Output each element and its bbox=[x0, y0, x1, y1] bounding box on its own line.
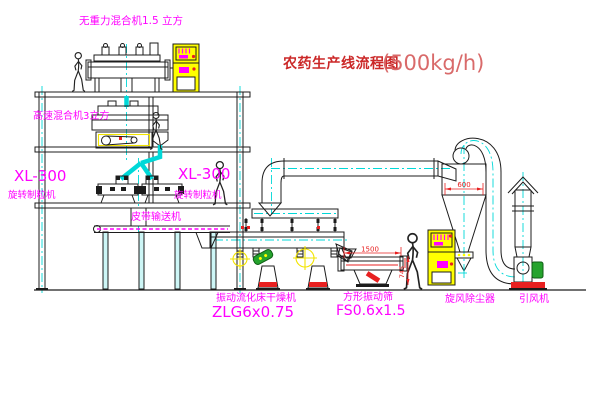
control-cabinet-lower bbox=[428, 230, 455, 285]
recirculation-duct bbox=[455, 138, 515, 284]
dryer-exhaust-duct bbox=[259, 158, 456, 216]
label-cyclone: 旋风除尘器 bbox=[445, 292, 495, 305]
label-sieve-name: 方形振动筛 bbox=[343, 290, 393, 303]
diagram-capacity: (500kg/h) bbox=[382, 51, 484, 75]
dim-sieve-height: 745 bbox=[398, 266, 406, 278]
label-granulator-right-name: 旋转制粒机 bbox=[174, 189, 222, 201]
gravity-free-mixer bbox=[86, 43, 179, 92]
control-cabinet-upper bbox=[173, 44, 199, 92]
label-granulator-left-name: 旋转制粒机 bbox=[8, 189, 56, 201]
label-dryer-model: ZLG6x0.75 bbox=[212, 303, 294, 321]
induced-draft-fan bbox=[509, 257, 547, 290]
label-belt-conveyor: 皮带输送机 bbox=[131, 210, 181, 223]
label-granulator-left-model: XL-300 bbox=[14, 167, 66, 185]
dim-cyclone-diameter: 600 bbox=[457, 181, 470, 189]
pesticide-line-flow-diagram: 农药生产线流程图 (500kg/h) 无重力混合机1.5 立方 高速混合机3立方… bbox=[0, 0, 600, 403]
granulator-left bbox=[96, 176, 140, 203]
label-sieve-model: FS0.6x1.5 bbox=[336, 303, 406, 319]
label-fan: 引风机 bbox=[519, 292, 549, 305]
worker-figure-2 bbox=[150, 113, 162, 150]
label-high-speed-mixer: 高速混合机3立方 bbox=[33, 109, 109, 122]
label-granulator-right-model: XL-300 bbox=[178, 165, 230, 183]
fluid-bed-dryer bbox=[210, 209, 352, 290]
label-gravity-free-mixer: 无重力混合机1.5 立方 bbox=[79, 14, 183, 27]
worker-figure-1 bbox=[72, 53, 85, 92]
dim-sieve-length: 1500 bbox=[361, 246, 379, 254]
